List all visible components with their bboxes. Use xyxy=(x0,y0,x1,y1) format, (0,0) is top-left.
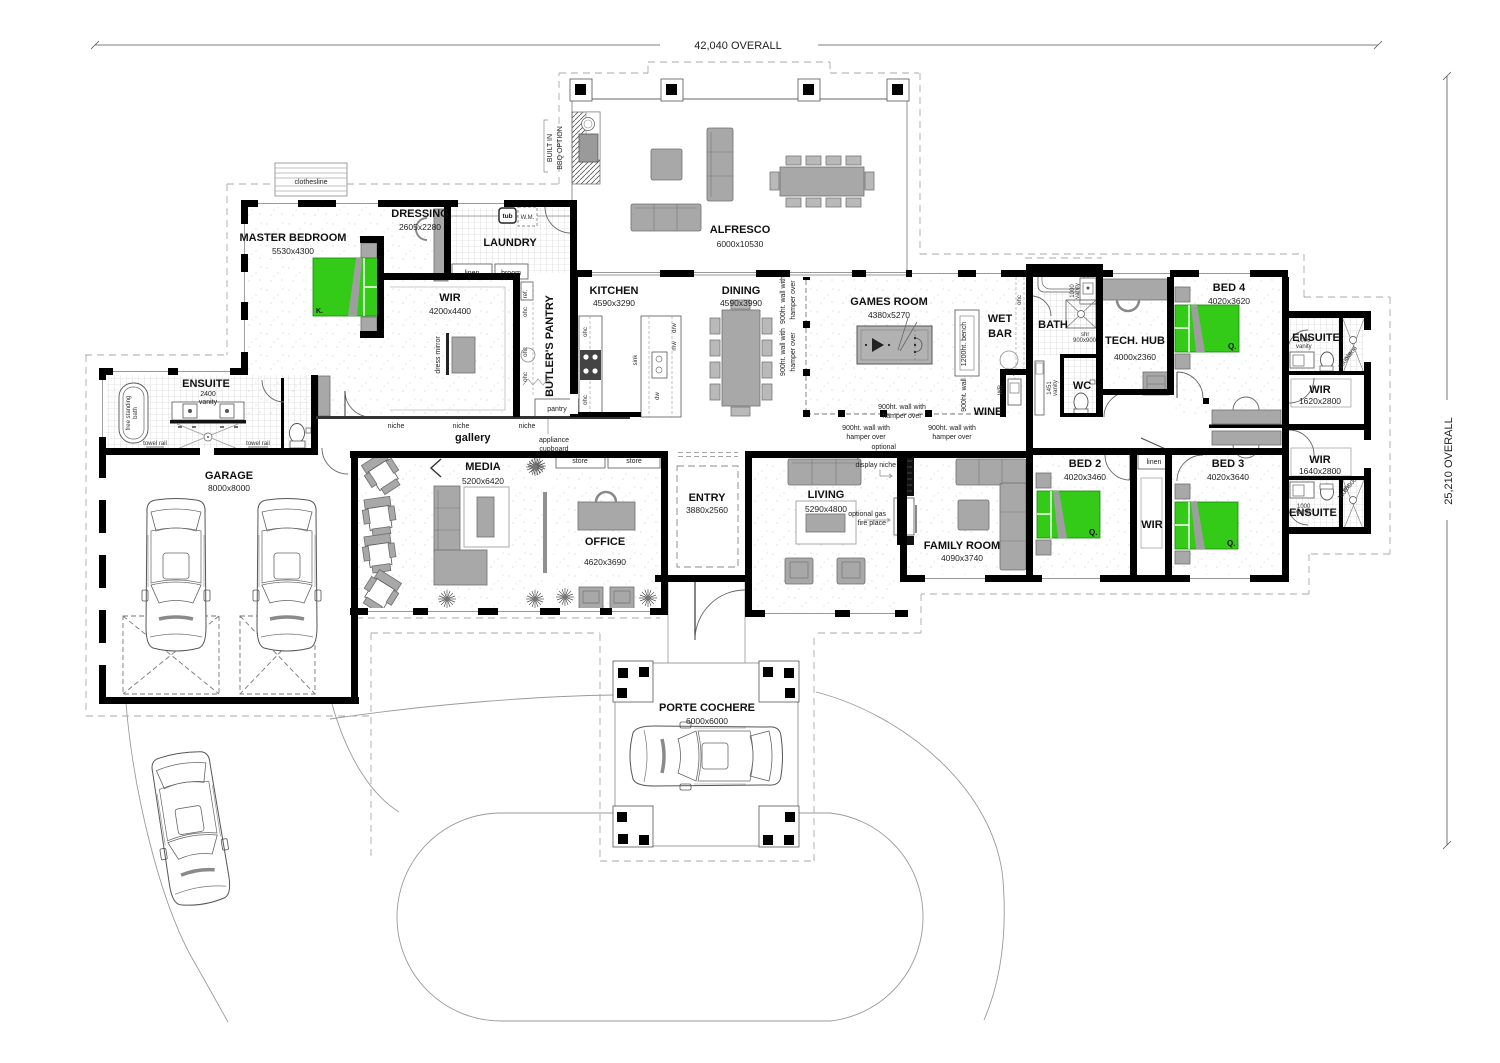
svg-text:gallery: gallery xyxy=(455,432,491,444)
svg-text:PORTE COCHERE: PORTE COCHERE xyxy=(659,702,755,714)
svg-text:4200x4400: 4200x4400 xyxy=(429,306,471,316)
svg-text:BED 3: BED 3 xyxy=(1212,458,1244,470)
svg-text:ohc: ohc xyxy=(523,307,529,317)
svg-text:4380x5270: 4380x5270 xyxy=(868,310,910,320)
svg-text:4090x3740: 4090x3740 xyxy=(941,553,983,563)
svg-text:W.M.: W.M. xyxy=(521,215,535,221)
svg-text:optional: optional xyxy=(871,444,896,451)
svg-text:bath: bath xyxy=(133,407,139,419)
svg-text:OFFICE: OFFICE xyxy=(585,536,625,548)
svg-text:WET: WET xyxy=(988,313,1013,325)
svg-text:store: store xyxy=(572,458,588,465)
svg-text:vanity: vanity xyxy=(199,399,218,406)
svg-text:towel rail: towel rail xyxy=(246,441,270,447)
svg-text:dress mirror: dress mirror xyxy=(435,336,442,374)
svg-text:dw: dw xyxy=(655,391,661,399)
svg-text:ohc: ohc xyxy=(1017,295,1023,305)
svg-text:WIR: WIR xyxy=(1309,454,1330,466)
svg-text:ref.: ref. xyxy=(523,289,529,298)
svg-text:WC: WC xyxy=(1073,380,1091,392)
svg-text:900ht. wall with: 900ht. wall with xyxy=(842,425,890,432)
svg-text:BATH: BATH xyxy=(1038,319,1068,331)
svg-text:free standing: free standing xyxy=(126,396,132,431)
svg-text:hamper over: hamper over xyxy=(846,434,886,441)
svg-text:LIVING: LIVING xyxy=(808,489,845,501)
svg-text:ENTRY: ENTRY xyxy=(689,492,727,504)
svg-text:pantry: pantry xyxy=(547,406,567,413)
svg-text:Q.: Q. xyxy=(1228,342,1236,351)
svg-text:WINE: WINE xyxy=(974,406,1003,418)
svg-text:BUILT IN: BUILT IN xyxy=(547,134,554,162)
svg-text:ohc: ohc xyxy=(523,372,529,382)
svg-text:4620x3690: 4620x3690 xyxy=(584,557,626,567)
svg-text:900ht. wall with: 900ht. wall with xyxy=(780,276,787,324)
svg-text:3880x2560: 3880x2560 xyxy=(686,505,728,515)
svg-text:900ht. wall: 900ht. wall xyxy=(961,378,968,412)
svg-text:8000x8000: 8000x8000 xyxy=(208,483,250,493)
svg-text:clothesline: clothesline xyxy=(294,179,327,186)
svg-text:vanity: vanity xyxy=(1296,344,1312,350)
svg-text:towel rail: towel rail xyxy=(143,441,167,447)
svg-text:6000x6000: 6000x6000 xyxy=(686,716,728,726)
svg-text:4020x3460: 4020x3460 xyxy=(1064,472,1106,482)
svg-text:ohc: ohc xyxy=(583,395,589,405)
svg-text:GARAGE: GARAGE xyxy=(205,470,253,482)
svg-text:4000x2360: 4000x2360 xyxy=(1114,352,1156,362)
svg-text:ohc: ohc xyxy=(583,327,589,337)
svg-text:niche: niche xyxy=(519,423,536,430)
svg-text:vanity: vanity xyxy=(1053,380,1059,396)
svg-text:Q.: Q. xyxy=(1089,528,1097,537)
svg-text:BED 4: BED 4 xyxy=(1213,282,1246,294)
svg-text:WIR: WIR xyxy=(439,292,460,304)
svg-text:fire place: fire place xyxy=(858,520,887,527)
svg-text:linen: linen xyxy=(1147,459,1162,466)
svg-text:sink: sink xyxy=(633,354,639,366)
svg-text:4590x3290: 4590x3290 xyxy=(593,298,635,308)
svg-text:4020x3640: 4020x3640 xyxy=(1207,472,1249,482)
svg-text:WIR: WIR xyxy=(1141,519,1162,531)
svg-text:2400: 2400 xyxy=(200,391,216,398)
svg-text:DINING: DINING xyxy=(722,285,761,297)
svg-text:1200ht. bench: 1200ht. bench xyxy=(961,322,968,366)
svg-text:optional gas: optional gas xyxy=(848,511,886,518)
svg-text:KITCHEN: KITCHEN xyxy=(590,285,639,297)
svg-text:hamper over: hamper over xyxy=(790,280,797,320)
svg-text:BAR: BAR xyxy=(988,328,1012,340)
svg-text:K.: K. xyxy=(316,308,323,315)
svg-text:ENSUITE: ENSUITE xyxy=(1289,507,1337,519)
svg-text:niche: niche xyxy=(453,423,470,430)
svg-text:BED 2: BED 2 xyxy=(1069,458,1101,470)
svg-text:mw: mw xyxy=(672,341,678,351)
svg-text:TECH. HUB: TECH. HUB xyxy=(1105,335,1165,347)
svg-text:ENSUITE: ENSUITE xyxy=(182,378,230,390)
svg-text:BBQ OPTION: BBQ OPTION xyxy=(557,126,564,170)
svg-text:1620x2800: 1620x2800 xyxy=(1299,396,1341,406)
svg-text:ENSUITE: ENSUITE xyxy=(1292,332,1340,344)
svg-text:4590x3990: 4590x3990 xyxy=(720,298,762,308)
svg-text:900ht. wall with: 900ht. wall with xyxy=(928,425,976,432)
svg-text:6000x10530: 6000x10530 xyxy=(717,239,764,249)
svg-text:900ht. wall with: 900ht. wall with xyxy=(780,328,787,376)
svg-text:MEDIA: MEDIA xyxy=(465,461,501,473)
svg-text:2605x2280: 2605x2280 xyxy=(399,222,441,232)
svg-text:25,210 OVERALL: 25,210 OVERALL xyxy=(1443,417,1455,504)
svg-text:BUTLER'S PANTRY: BUTLER'S PANTRY xyxy=(544,295,556,397)
svg-text:WIR: WIR xyxy=(1309,384,1330,396)
svg-text:1640x2800: 1640x2800 xyxy=(1299,466,1341,476)
svg-text:LAUNDRY: LAUNDRY xyxy=(483,237,537,249)
svg-text:5290x4800: 5290x4800 xyxy=(805,504,847,514)
svg-text:hamper over: hamper over xyxy=(932,434,972,441)
svg-text:42,040 OVERALL: 42,040 OVERALL xyxy=(694,40,781,52)
svg-text:GAMES ROOM: GAMES ROOM xyxy=(850,296,928,308)
svg-text:4020x3620: 4020x3620 xyxy=(1208,296,1250,306)
svg-text:vanity: vanity xyxy=(1075,283,1081,299)
svg-text:hamper over: hamper over xyxy=(790,332,797,372)
svg-text:DRESSING: DRESSING xyxy=(391,208,448,220)
svg-text:niche: niche xyxy=(388,423,405,430)
svg-text:store: store xyxy=(626,458,642,465)
svg-text:Q.: Q. xyxy=(1227,539,1235,548)
svg-text:hamper over: hamper over xyxy=(882,413,922,420)
svg-text:5200x6420: 5200x6420 xyxy=(462,476,504,486)
svg-text:WR: WR xyxy=(998,384,1004,395)
svg-text:MASTER BEDROOM: MASTER BEDROOM xyxy=(240,232,347,244)
svg-text:tub: tub xyxy=(502,213,512,220)
svg-text:drw: drw xyxy=(672,323,678,333)
svg-text:display niche: display niche xyxy=(856,462,897,469)
svg-text:900x900: 900x900 xyxy=(1073,338,1097,344)
svg-text:900ht. wall with: 900ht. wall with xyxy=(878,404,926,411)
svg-text:appliance: appliance xyxy=(539,437,569,444)
svg-text:5530x4300: 5530x4300 xyxy=(272,246,314,256)
svg-text:ALFRESCO: ALFRESCO xyxy=(710,224,771,236)
svg-text:FAMILY ROOM: FAMILY ROOM xyxy=(924,540,1000,552)
